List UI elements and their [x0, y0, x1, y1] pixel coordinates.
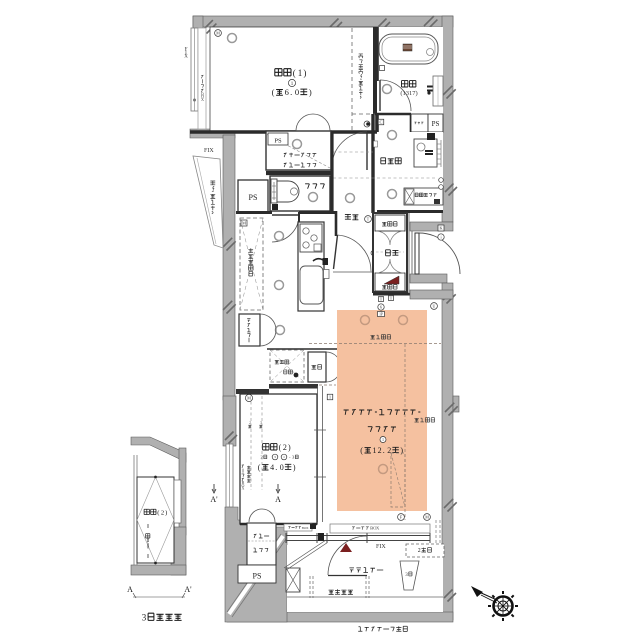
svg-text:M: M — [425, 514, 429, 519]
svg-text:PS: PS — [432, 120, 440, 128]
svg-text:3: 3 — [260, 421, 262, 425]
svg-text:1: 1 — [283, 455, 285, 459]
svg-text:2: 2 — [249, 421, 251, 425]
svg-text:FIX: FIX — [376, 544, 386, 550]
svg-text:T: T — [380, 297, 383, 302]
svg-text:2: 2 — [212, 188, 215, 194]
svg-text:T: T — [390, 296, 393, 301]
svg-text:X: X — [242, 486, 245, 491]
svg-text:0: 0 — [295, 87, 299, 97]
svg-text:A: A — [275, 495, 281, 504]
svg-text:): ) — [400, 446, 403, 455]
svg-text:M: M — [216, 30, 220, 35]
svg-text:(: ( — [293, 68, 296, 78]
svg-text:2: 2 — [161, 510, 164, 517]
svg-text:2: 2 — [418, 548, 421, 554]
svg-text:A': A' — [184, 585, 192, 594]
svg-text:FIX: FIX — [204, 148, 214, 154]
svg-text:6: 6 — [285, 87, 289, 97]
svg-text:X: X — [201, 97, 204, 102]
svg-text:(: ( — [258, 463, 261, 472]
svg-text:1: 1 — [373, 446, 377, 455]
svg-text:.: . — [383, 446, 385, 455]
svg-text:(: ( — [157, 510, 159, 517]
svg-text:U: U — [433, 303, 436, 308]
svg-text:2: 2 — [378, 446, 382, 455]
svg-text:1: 1 — [298, 68, 303, 78]
svg-text:M: M — [247, 395, 251, 400]
svg-text:): ) — [303, 68, 306, 78]
svg-text:1: 1 — [382, 437, 384, 442]
svg-text:(: ( — [360, 446, 363, 455]
svg-text:): ) — [165, 510, 167, 517]
svg-text:3: 3 — [142, 612, 147, 622]
svg-text:A: A — [127, 585, 133, 594]
svg-text:PS: PS — [249, 193, 258, 202]
svg-text:1: 1 — [329, 395, 331, 400]
svg-text:2: 2 — [283, 443, 287, 452]
svg-text:PS: PS — [253, 572, 262, 581]
svg-text:(: ( — [279, 443, 282, 452]
svg-text:PS: PS — [274, 138, 282, 145]
svg-text:A': A' — [210, 495, 218, 504]
svg-text:(1317): (1317) — [400, 90, 417, 97]
svg-text:6: 6 — [380, 304, 382, 309]
svg-text:): ) — [293, 463, 296, 472]
svg-text:4: 4 — [270, 463, 274, 472]
svg-text:0: 0 — [280, 463, 284, 472]
svg-text:.: . — [290, 87, 292, 97]
svg-text:(: ( — [272, 87, 275, 97]
svg-text:M: M — [242, 221, 246, 226]
svg-text:3: 3 — [274, 455, 276, 459]
svg-text:.: . — [275, 463, 277, 472]
svg-text:): ) — [288, 443, 291, 452]
svg-text:): ) — [309, 87, 312, 97]
svg-text:X: X — [184, 55, 188, 60]
svg-text:C: C — [379, 120, 382, 125]
svg-text:1P: 1P — [379, 312, 383, 316]
